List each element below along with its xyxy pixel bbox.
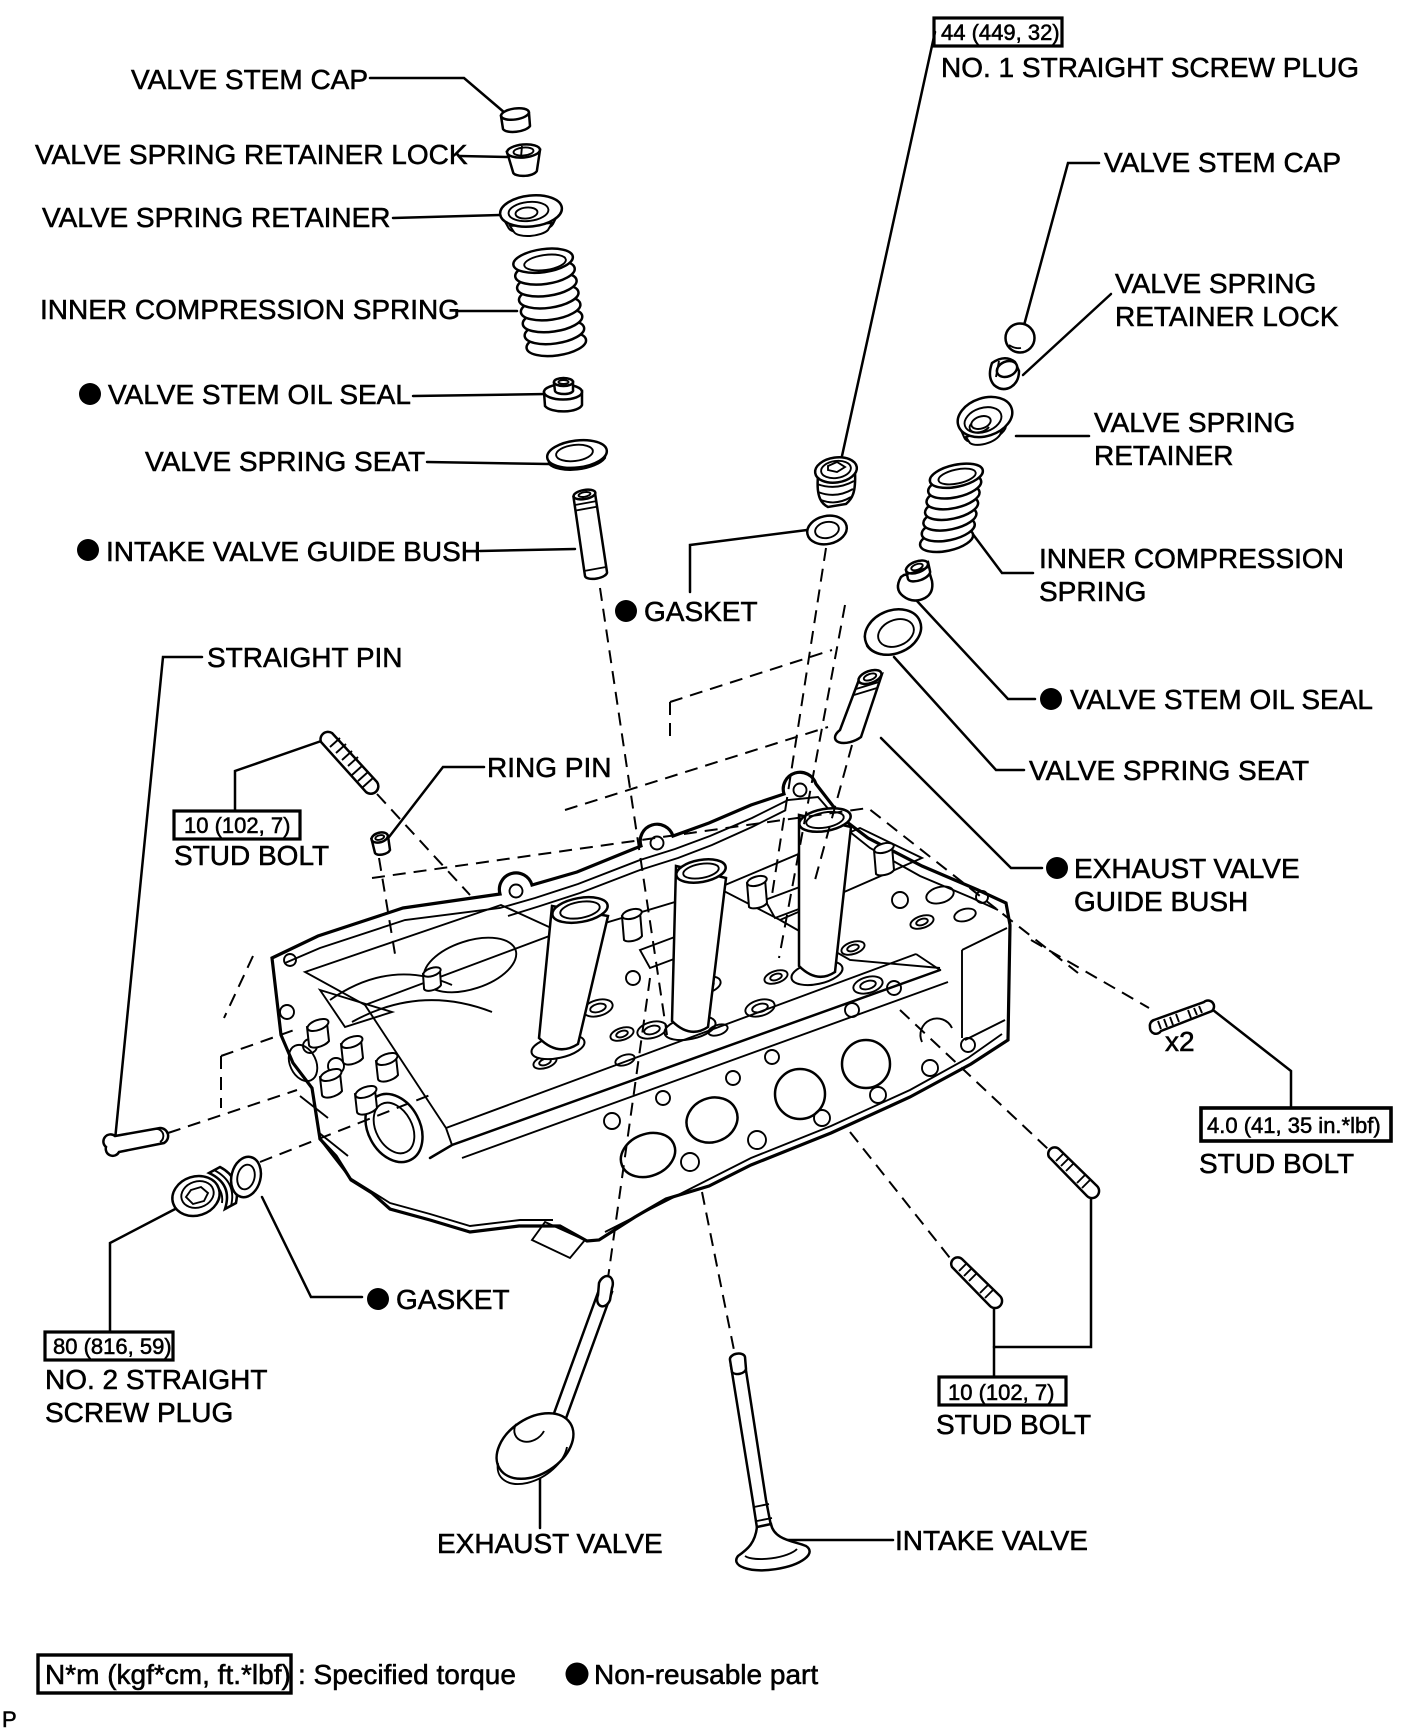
svg-text:4.0 (41, 35 in.*lbf): 4.0 (41, 35 in.*lbf) (1207, 1113, 1381, 1138)
svg-text:STUD BOLT: STUD BOLT (174, 840, 329, 871)
svg-text:VALVE SPRING: VALVE SPRING (1094, 407, 1295, 438)
svg-text:VALVE STEM CAP: VALVE STEM CAP (1104, 147, 1341, 178)
svg-text:VALVE STEM CAP: VALVE STEM CAP (131, 64, 368, 95)
svg-text:N*m (kgf*cm, ft.*lbf): N*m (kgf*cm, ft.*lbf) (45, 1659, 291, 1690)
svg-text:P: P (2, 1707, 17, 1732)
svg-text:RING PIN: RING PIN (487, 752, 611, 783)
svg-text:STUD BOLT: STUD BOLT (936, 1409, 1091, 1440)
svg-text:GASKET: GASKET (644, 596, 758, 627)
svg-text:EXHAUST VALVE: EXHAUST VALVE (1074, 853, 1300, 884)
svg-text:INNER COMPRESSION: INNER COMPRESSION (1039, 543, 1344, 574)
svg-text:NO. 2 STRAIGHT: NO. 2 STRAIGHT (45, 1364, 267, 1395)
svg-text:VALVE STEM OIL SEAL: VALVE STEM OIL SEAL (1070, 684, 1373, 715)
svg-text:STRAIGHT PIN: STRAIGHT PIN (207, 642, 403, 673)
svg-text:INTAKE VALVE GUIDE BUSH: INTAKE VALVE GUIDE BUSH (106, 536, 481, 567)
svg-text:VALVE SPRING RETAINER LOCK: VALVE SPRING RETAINER LOCK (35, 139, 468, 170)
svg-text:EXHAUST VALVE: EXHAUST VALVE (437, 1528, 663, 1559)
svg-text:VALVE STEM OIL SEAL: VALVE STEM OIL SEAL (108, 379, 411, 410)
svg-text:10 (102, 7): 10 (102, 7) (948, 1380, 1054, 1405)
svg-text:Non-reusable part: Non-reusable part (594, 1659, 818, 1690)
svg-text:STUD BOLT: STUD BOLT (1199, 1148, 1354, 1179)
svg-text:: Specified torque: : Specified torque (298, 1659, 516, 1690)
svg-text:VALVE SPRING SEAT: VALVE SPRING SEAT (145, 446, 425, 477)
svg-text:VALVE SPRING SEAT: VALVE SPRING SEAT (1029, 755, 1309, 786)
svg-text:NO. 1 STRAIGHT SCREW PLUG: NO. 1 STRAIGHT SCREW PLUG (941, 52, 1359, 83)
svg-text:RETAINER LOCK: RETAINER LOCK (1115, 301, 1339, 332)
svg-text:44 (449, 32): 44 (449, 32) (941, 20, 1060, 45)
svg-text:GASKET: GASKET (396, 1284, 510, 1315)
svg-text:SPRING: SPRING (1039, 576, 1146, 607)
svg-text:10 (102, 7): 10 (102, 7) (184, 813, 290, 838)
svg-text:VALVE SPRING: VALVE SPRING (1115, 268, 1316, 299)
svg-text:80 (816, 59): 80 (816, 59) (53, 1334, 172, 1359)
svg-text:INNER COMPRESSION SPRING: INNER COMPRESSION SPRING (40, 294, 460, 325)
svg-text:RETAINER: RETAINER (1094, 440, 1234, 471)
svg-text:x2: x2 (1165, 1026, 1195, 1057)
svg-text:VALVE SPRING RETAINER: VALVE SPRING RETAINER (42, 202, 391, 233)
svg-text:SCREW PLUG: SCREW PLUG (45, 1397, 233, 1428)
svg-text:INTAKE VALVE: INTAKE VALVE (895, 1525, 1088, 1556)
svg-text:GUIDE BUSH: GUIDE BUSH (1074, 886, 1248, 917)
